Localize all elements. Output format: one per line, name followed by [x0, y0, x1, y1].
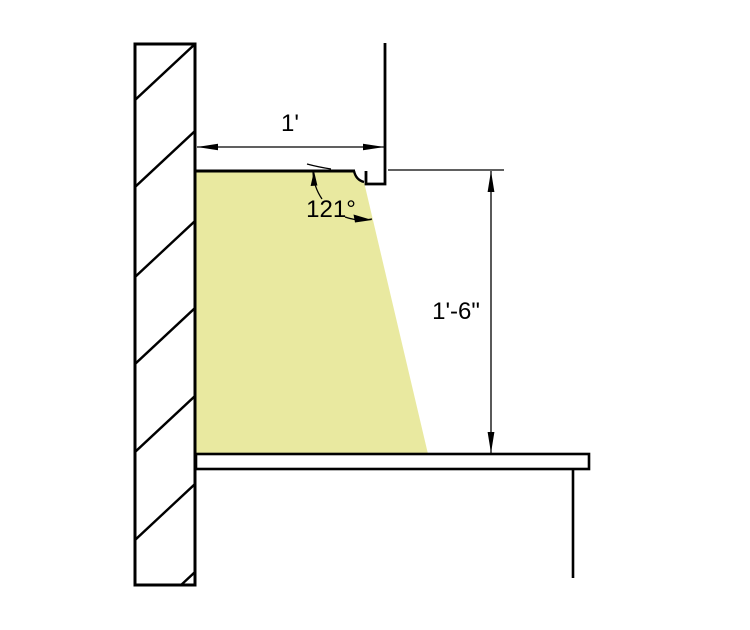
- angle-dimension-label: 121°: [306, 196, 356, 223]
- width-dimension-label: 1': [281, 110, 299, 137]
- arrowhead-down-icon: [488, 432, 495, 453]
- arrowhead-up-icon: [488, 171, 495, 192]
- countertop: [196, 454, 589, 469]
- angle-arc-tail: [307, 164, 331, 169]
- drawing-canvas: 1' 1'-6" 121°: [0, 0, 750, 630]
- wall-outline: [135, 44, 195, 585]
- valance-profile: [366, 43, 385, 184]
- wall-section: [135, 44, 195, 628]
- arrowhead-left-icon: [197, 144, 218, 151]
- section-drawing: 1' 1'-6" 121°: [0, 0, 750, 630]
- arrowhead-right-icon: [363, 144, 384, 151]
- height-dimension-label: 1'-6": [432, 298, 480, 325]
- width-dimension: 1': [197, 110, 384, 150]
